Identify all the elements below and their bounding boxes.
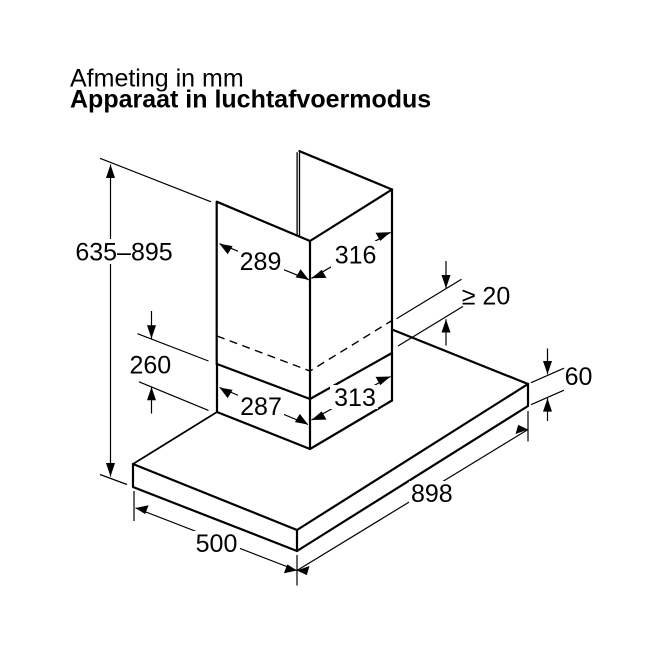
svg-text:260: 260	[129, 352, 171, 380]
svg-text:898: 898	[411, 480, 453, 508]
svg-text:313: 313	[334, 384, 376, 412]
svg-text:635–895: 635–895	[75, 239, 172, 267]
svg-text:≥ 20: ≥ 20	[462, 283, 510, 311]
svg-text:Apparaat in luchtafvoermodus: Apparaat in luchtafvoermodus	[70, 86, 431, 114]
svg-text:500: 500	[196, 530, 238, 558]
svg-text:289: 289	[240, 248, 282, 276]
svg-text:316: 316	[335, 242, 377, 270]
svg-text:287: 287	[240, 393, 282, 421]
svg-text:60: 60	[565, 363, 593, 391]
